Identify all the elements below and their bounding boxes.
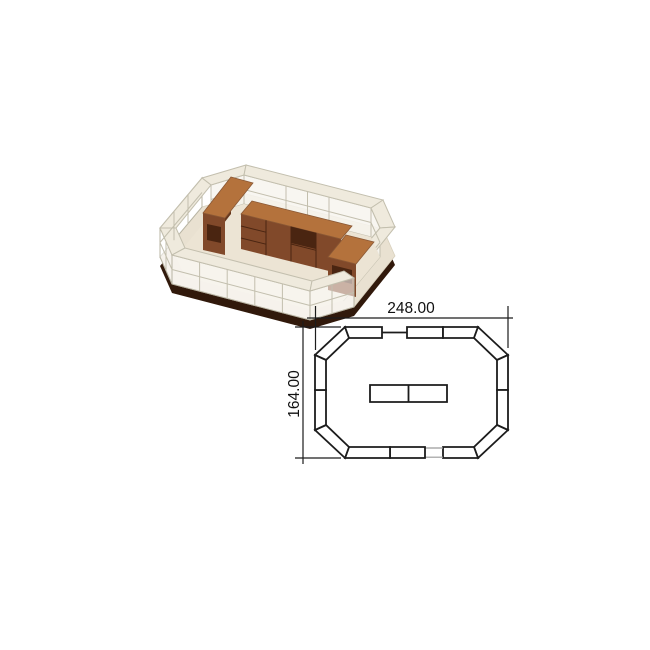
plan-corner-counter-top-right <box>474 327 508 360</box>
plan-corner-counter-top-left <box>315 327 349 360</box>
drawing-canvas: 248.00 164.00 <box>0 0 650 650</box>
plan-counter-segment <box>315 355 326 390</box>
cabinet-left-shelf-opening <box>207 224 221 243</box>
plan-bottom-opening <box>425 448 443 457</box>
plan-counter-segment <box>315 390 326 430</box>
plan-counter-segment <box>443 327 478 338</box>
kiosk-3d-render <box>160 165 395 329</box>
plan-width-label: 248.00 <box>387 300 435 317</box>
plan-counter-segment <box>345 447 390 458</box>
plan-counter-segment <box>407 327 443 338</box>
plan-counter-segment <box>443 447 478 458</box>
plan-height-label: 164.00 <box>286 370 303 418</box>
plan-corner-counter-bottom-right <box>474 425 508 458</box>
plan-corner-counter-bottom-left <box>315 425 349 458</box>
plan-counter-segment <box>497 355 508 390</box>
plan-counter-segment <box>497 390 508 430</box>
plan-counter-segment <box>345 327 382 338</box>
plan-counter-segment <box>390 447 425 458</box>
plan-center-cabinet <box>370 385 447 402</box>
